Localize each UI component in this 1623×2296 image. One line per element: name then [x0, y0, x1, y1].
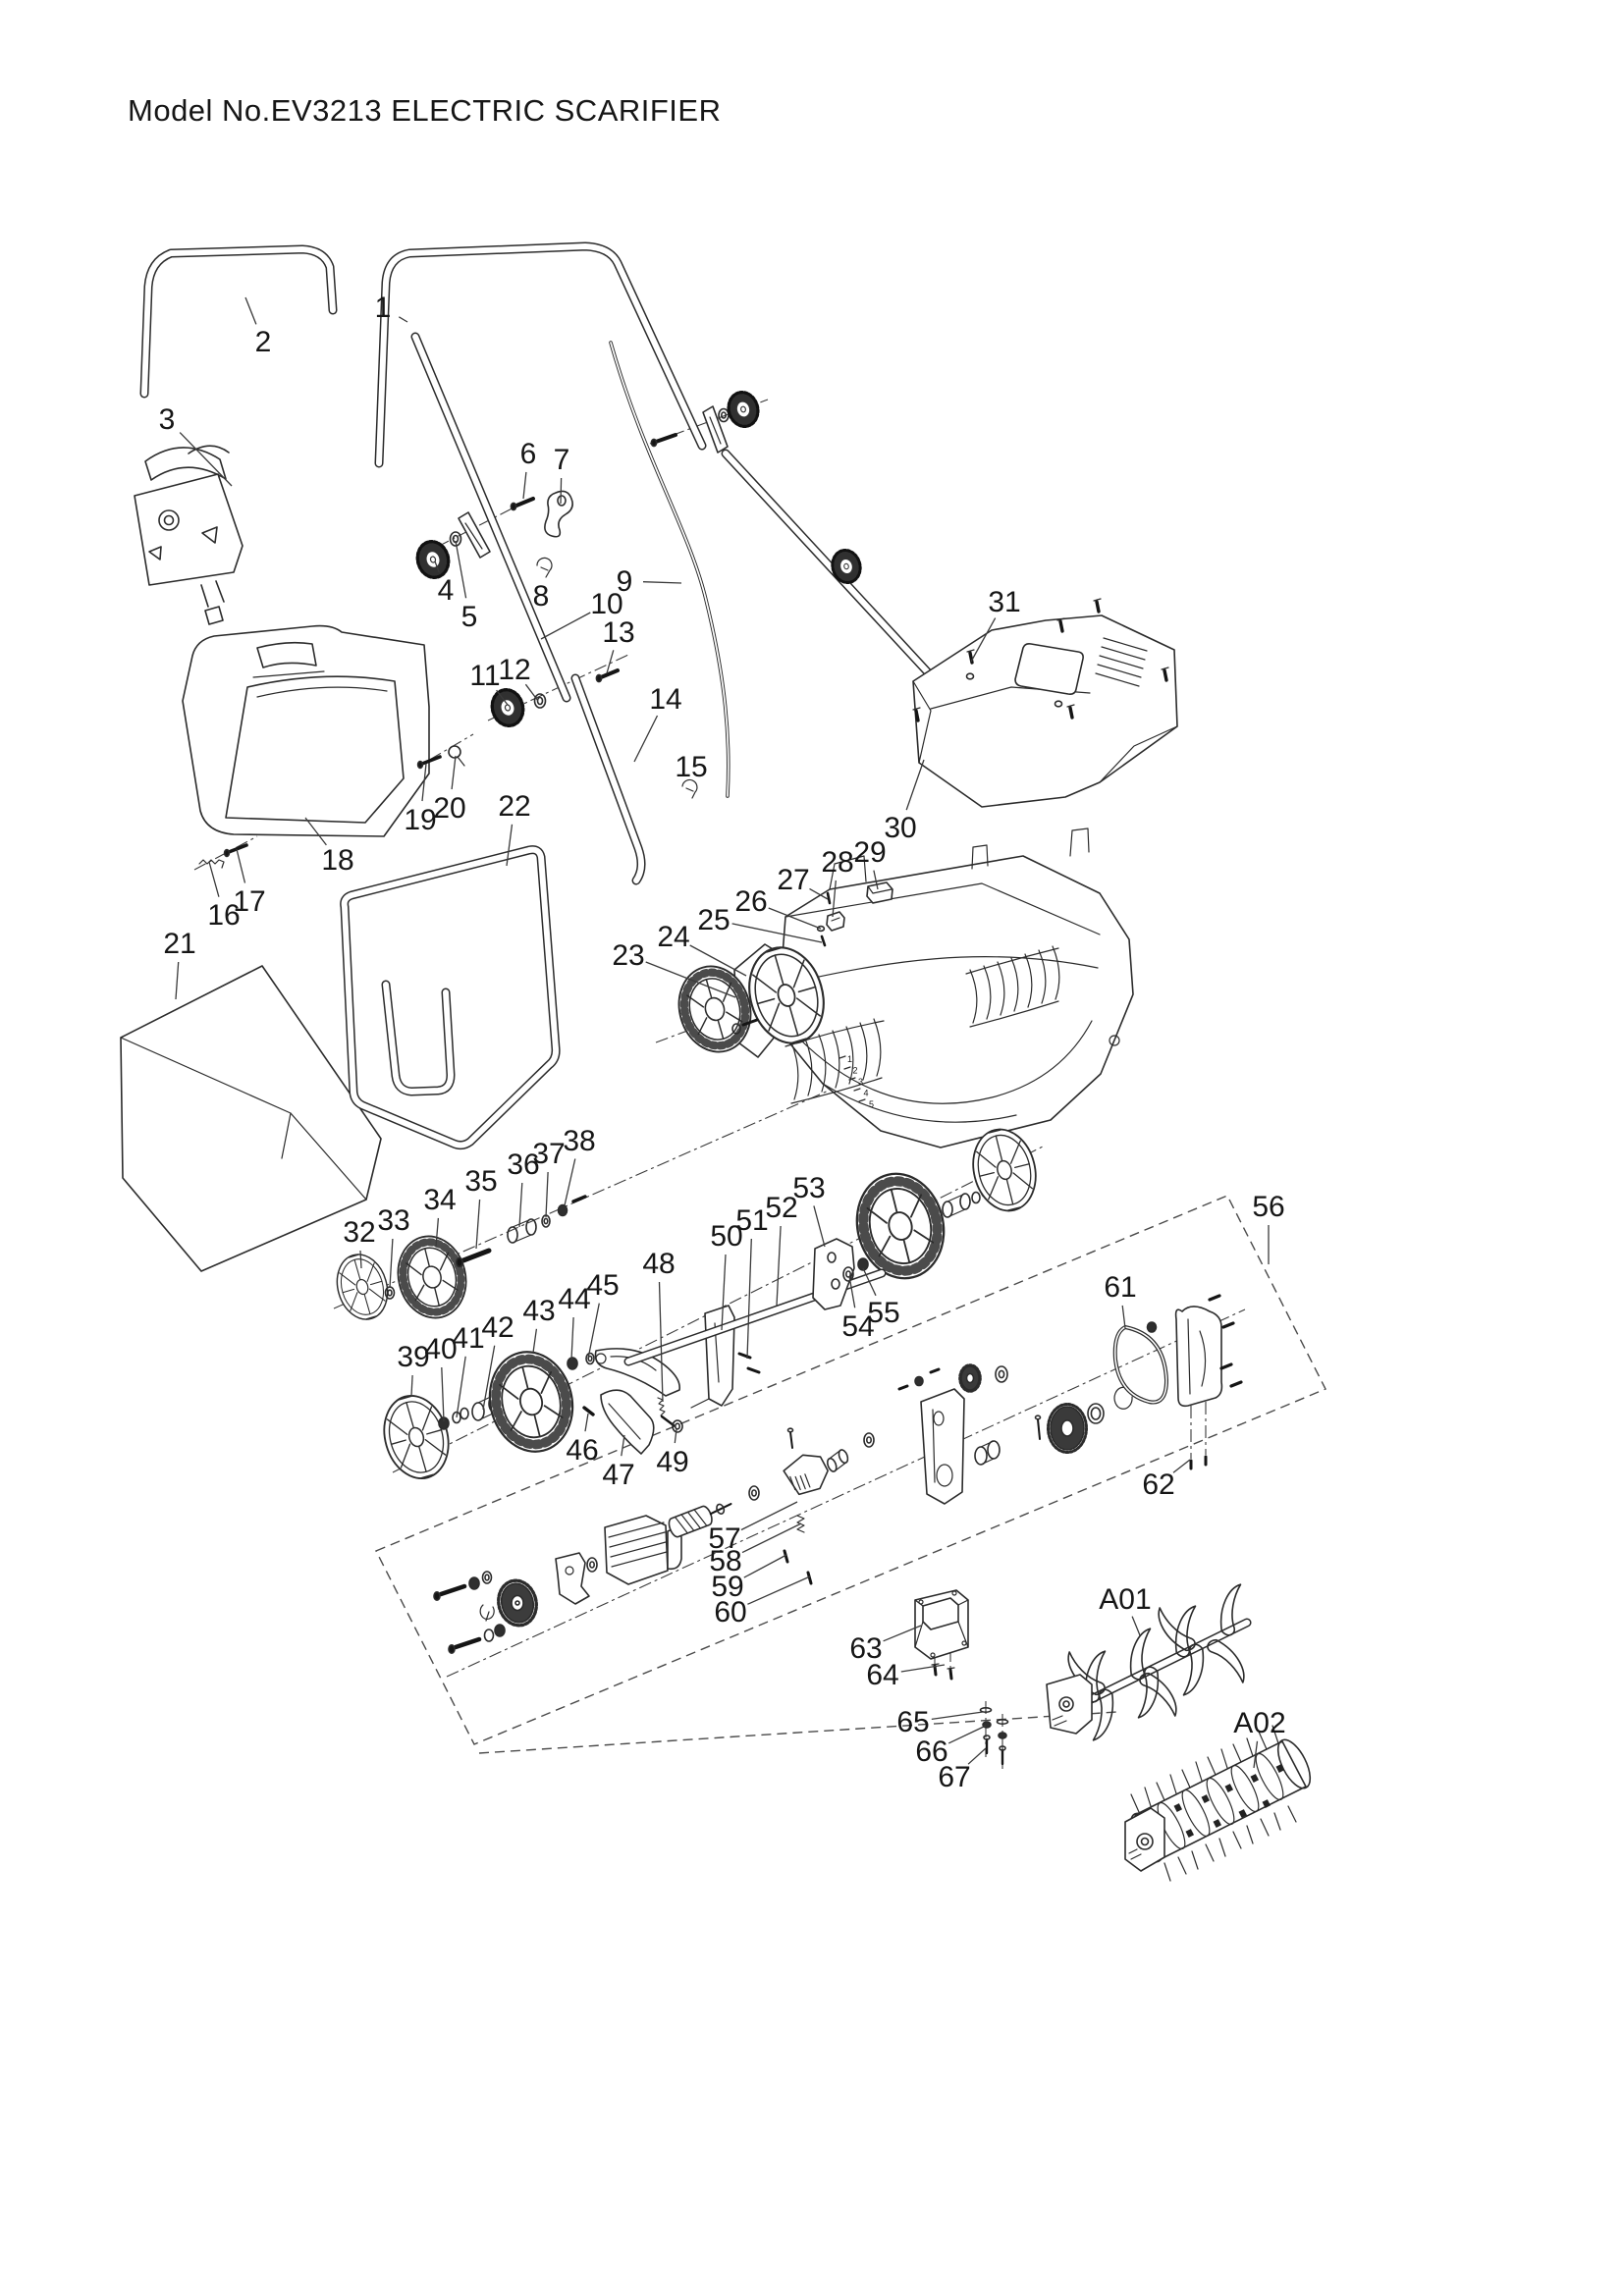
callout-leader-17	[237, 849, 245, 883]
part-callout-65: 65	[896, 1706, 929, 1738]
part-callout-A01: A01	[1099, 1583, 1151, 1616]
part-callout-7: 7	[554, 444, 570, 476]
fastener-stack-65-67	[981, 1708, 1008, 1764]
callout-leader-5	[456, 541, 466, 598]
deck-scale-mark-4: 4	[864, 1089, 869, 1098]
part-callout-49: 49	[656, 1446, 688, 1478]
part-callout-48: 48	[642, 1248, 675, 1280]
part-callout-18: 18	[321, 844, 353, 877]
part-callout-8: 8	[533, 580, 550, 613]
part-callout-38: 38	[563, 1125, 595, 1157]
diagram-title: Model No.EV3213 ELECTRIC SCARIFIER	[128, 93, 722, 128]
part-callout-37: 37	[532, 1138, 565, 1170]
callout-leader-67	[968, 1748, 986, 1764]
handle-tube-part10	[415, 337, 567, 698]
deck-scale-mark-2: 2	[853, 1066, 858, 1076]
part-callout-23: 23	[612, 939, 644, 972]
deck-scale-mark-3: 3	[858, 1077, 863, 1087]
part-callout-62: 62	[1142, 1468, 1174, 1501]
belt-cover-part62	[1176, 1296, 1241, 1468]
deck-scale-mark-5: 5	[869, 1099, 874, 1109]
bag-frame-part22	[345, 850, 556, 1146]
part-callout-11: 11	[469, 660, 500, 692]
callout-leader-7	[561, 478, 562, 504]
part-callout-13: 13	[602, 616, 634, 649]
scarifier-roller-a01	[1047, 1584, 1259, 1740]
part-callout-55: 55	[867, 1297, 899, 1329]
drive-internals	[864, 1322, 1157, 1504]
drive-belt-part61	[1115, 1327, 1166, 1403]
spring-part16	[199, 860, 224, 868]
callout-leader-43	[533, 1329, 536, 1353]
part-callout-12: 12	[498, 654, 530, 686]
callout-leader-59	[744, 1555, 786, 1577]
bolt-part17	[225, 845, 246, 856]
callout-leader-58	[742, 1523, 801, 1553]
part-callout-20: 20	[433, 792, 465, 825]
part-callout-42: 42	[481, 1311, 514, 1344]
callout-leader-10	[541, 613, 590, 639]
mount-box-part63	[915, 1590, 968, 1659]
callout-leader-20	[452, 756, 456, 789]
part-callout-27: 27	[777, 864, 809, 896]
part-callout-34: 34	[423, 1184, 456, 1216]
callout-leader-46	[585, 1414, 588, 1431]
deck-scale-mark-1: 1	[847, 1054, 852, 1064]
part-callout-25: 25	[697, 904, 730, 936]
bolt-right	[651, 435, 676, 447]
callout-leader-30	[906, 760, 924, 810]
screws-part51	[739, 1354, 759, 1372]
callout-leader-13	[607, 650, 614, 673]
part-callout-56: 56	[1252, 1191, 1284, 1223]
part-callout-32: 32	[343, 1216, 375, 1249]
handle-tube-right-lower	[726, 454, 928, 672]
callout-leader-60	[747, 1576, 810, 1604]
part-callout-22: 22	[498, 790, 530, 823]
clamp-bar-left	[459, 512, 490, 558]
part-callout-45: 45	[586, 1269, 619, 1302]
callout-leader-21	[176, 962, 179, 999]
part-callout-61: 61	[1104, 1271, 1136, 1304]
callout-leader-52	[777, 1226, 781, 1306]
part-callout-26: 26	[734, 885, 767, 918]
part-callout-17: 17	[233, 885, 265, 918]
bracket-part53	[813, 1239, 854, 1309]
cover-part18	[183, 626, 429, 836]
part-callout-53: 53	[792, 1172, 825, 1204]
callout-leader-40	[442, 1367, 444, 1421]
bolt-part6	[511, 499, 533, 510]
part-callout-3: 3	[159, 403, 176, 436]
diagram-page: Model No.EV3213 ELECTRIC SCARIFIER	[0, 0, 1623, 2296]
part-callout-43: 43	[522, 1295, 555, 1327]
callout-leader-36	[519, 1183, 522, 1227]
part-callout-46: 46	[566, 1434, 598, 1467]
callout-leader-62	[1173, 1460, 1190, 1472]
part-callout-6: 6	[520, 438, 537, 470]
clip-part8	[537, 558, 552, 577]
callout-leader-37	[546, 1172, 548, 1217]
callout-leader-33	[390, 1239, 393, 1288]
part-callout-60: 60	[714, 1596, 746, 1629]
part-callout-29: 29	[853, 836, 886, 869]
callout-leader-38	[565, 1159, 575, 1206]
callout-leader-16	[209, 862, 219, 897]
lever-part7	[545, 491, 572, 536]
part-callout-5: 5	[461, 601, 478, 633]
exploded-view-diagram: Model No.EV3213 ELECTRIC SCARIFIER	[0, 0, 1623, 2296]
callout-leader-65	[932, 1712, 983, 1719]
callout-leader-66	[948, 1726, 986, 1743]
handle-knob-right	[725, 389, 762, 430]
part-callout-67: 67	[938, 1761, 970, 1793]
callout-leader-53	[814, 1205, 825, 1247]
part-callout-28: 28	[821, 846, 853, 879]
part-callout-33: 33	[377, 1204, 409, 1237]
handle-tube-part14	[575, 678, 641, 881]
part-callout-31: 31	[988, 586, 1020, 618]
callout-leader-1	[399, 317, 407, 322]
part-callout-21: 21	[163, 928, 195, 960]
switch-assembly-part3	[135, 446, 243, 624]
part-callout-14: 14	[649, 683, 681, 716]
spring-pin-part20	[449, 746, 464, 766]
part-callout-24: 24	[657, 921, 689, 953]
callout-leader-2	[245, 297, 256, 324]
callout-leader-57	[741, 1502, 797, 1530]
callout-leader-64	[901, 1665, 945, 1672]
clamp-bar-right	[703, 406, 728, 453]
motor-assembly	[434, 1428, 855, 1653]
part-callout-A02: A02	[1233, 1707, 1285, 1739]
part-callout-15: 15	[675, 751, 707, 783]
part-callout-4: 4	[438, 574, 455, 607]
part-callout-41: 41	[452, 1322, 484, 1355]
part-callout-1: 1	[375, 292, 392, 324]
part-callout-19: 19	[404, 804, 436, 836]
axle-bracket-part50	[691, 1306, 734, 1408]
callout-leader-9	[643, 582, 681, 583]
callout-leader-44	[571, 1317, 573, 1360]
callout-leader-35	[476, 1200, 480, 1249]
handle-knob-part11	[488, 686, 527, 729]
handle-knob-lower-right	[829, 547, 864, 585]
callout-leader-12	[525, 684, 538, 701]
grass-bag-part21	[121, 966, 381, 1271]
callout-leader-39	[411, 1375, 412, 1396]
callout-leader-14	[634, 716, 658, 762]
top-housing-part30	[913, 615, 1177, 807]
part-callout-64: 64	[866, 1659, 898, 1691]
part-callout-51: 51	[735, 1204, 768, 1237]
part-callout-47: 47	[602, 1459, 634, 1491]
part-callout-30: 30	[884, 812, 916, 844]
callout-leader-A01	[1132, 1617, 1140, 1635]
upper-handle-part2	[144, 249, 333, 394]
part-callout-35: 35	[464, 1165, 497, 1198]
rear-right-wheel-group	[846, 1123, 1044, 1288]
callout-leader-51	[747, 1239, 751, 1359]
aerator-roller-a02	[1124, 1726, 1317, 1881]
callout-leader-6	[523, 472, 526, 499]
part-callout-2: 2	[255, 326, 272, 358]
callout-leader-61	[1122, 1306, 1125, 1328]
callout-leader-47	[622, 1435, 624, 1456]
